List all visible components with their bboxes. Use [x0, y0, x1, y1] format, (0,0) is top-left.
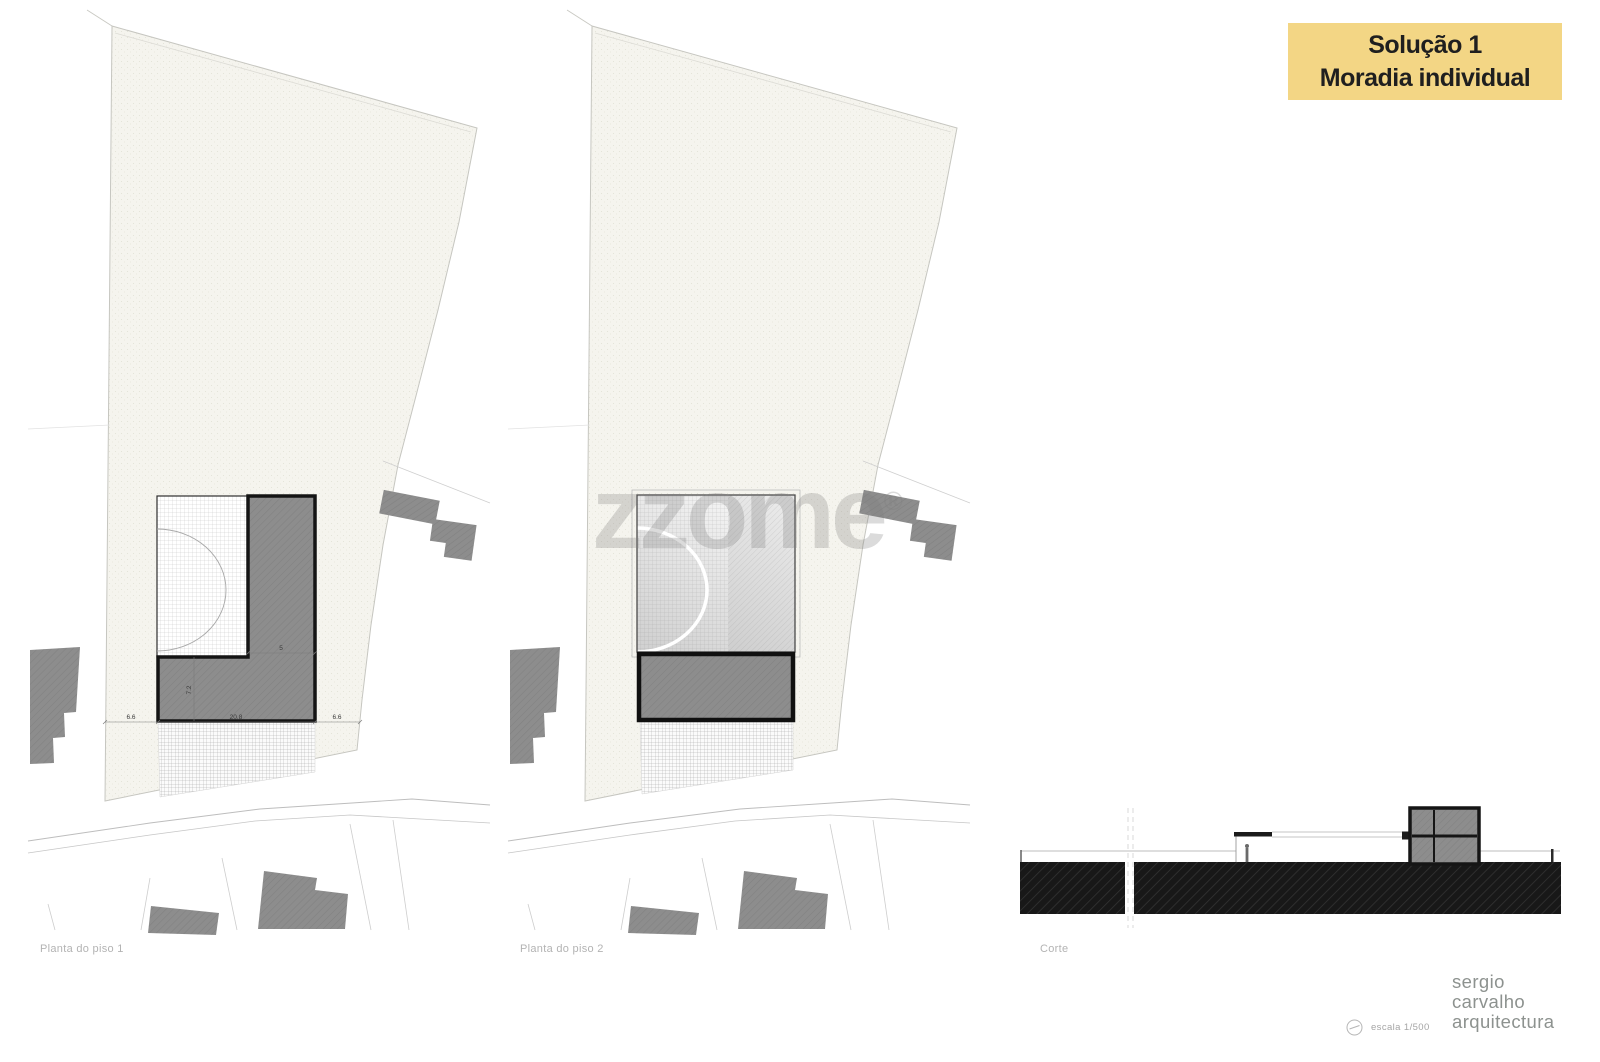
section-cut-lines [1128, 808, 1133, 928]
dim-left: 6.6 [126, 714, 135, 721]
roof-below [637, 495, 795, 652]
site-plan-2 [508, 10, 970, 935]
courtyard [157, 496, 248, 657]
logo-line-2: carvalho [1452, 992, 1555, 1012]
scale-label: escala 1/500 [1371, 1022, 1430, 1033]
solution-title-line1: Solução 1 [1368, 29, 1482, 62]
ground-slab-left [1020, 862, 1125, 914]
ground-slab-right [1134, 862, 1561, 914]
solution-title-box: Solução 1 Moradia individual [1288, 23, 1562, 100]
dim-depth: 7.2 [186, 685, 193, 694]
caption-plan2: Planta do piso 2 [520, 943, 604, 955]
presentation-sheet: { "title_box": { "line1": "Solução 1", "… [0, 0, 1600, 1062]
caption-section: Corte [1040, 943, 1068, 955]
dim-wing: 5 [279, 645, 283, 652]
logo-line-3: arquitectura [1452, 1012, 1555, 1032]
pavement-hatch [640, 722, 793, 794]
site-plan-1: 6.6 20.8 6.6 5 7.2 [28, 10, 490, 935]
dim-width: 20.8 [230, 714, 243, 721]
scale-dial-icon [1346, 1019, 1363, 1036]
human-figure [1245, 844, 1249, 862]
dim-right: 6.6 [332, 714, 341, 721]
logo-line-1: sergio [1452, 972, 1555, 992]
architect-logo: sergio carvalho arquitectura [1452, 972, 1555, 1032]
solution-title-line2: Moradia individual [1320, 62, 1530, 95]
drawing-canvas: 6.6 20.8 6.6 5 7.2 [0, 0, 1600, 1062]
house-footprint-floor2 [639, 654, 793, 720]
scale-indicator: escala 1/500 [1346, 1019, 1430, 1036]
flat-roof-slab [1234, 832, 1272, 837]
pavement-hatch [158, 722, 315, 797]
section-corte [1020, 808, 1561, 928]
railing-post [1551, 849, 1554, 862]
caption-plan1: Planta do piso 1 [40, 943, 124, 955]
